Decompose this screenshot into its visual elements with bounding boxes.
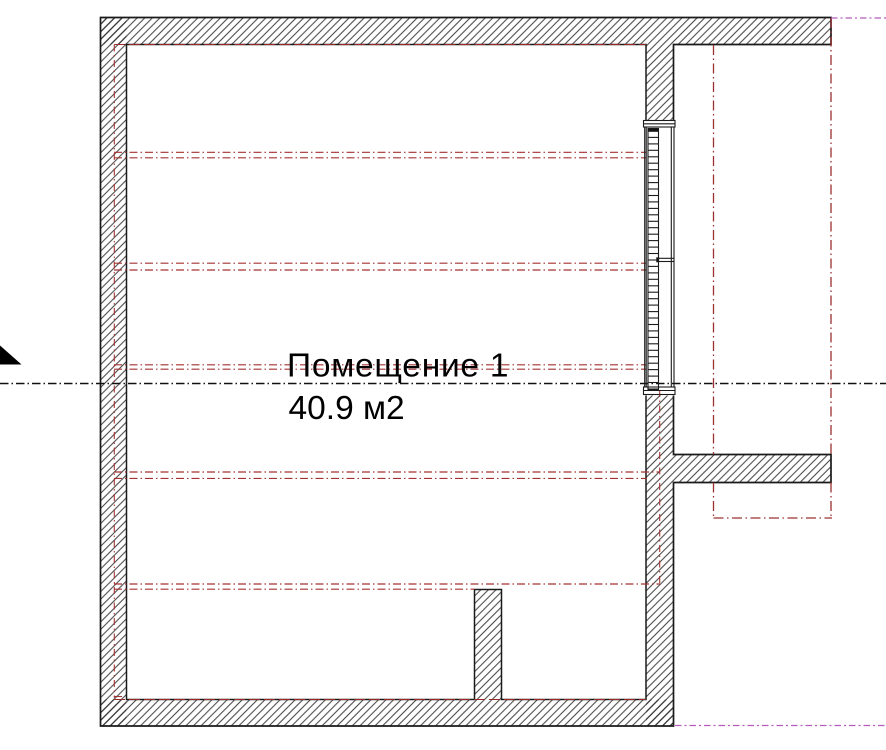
svg-text:Помещение 1: Помещение 1 [287,348,509,385]
svg-text:40.9 м2: 40.9 м2 [289,390,405,427]
